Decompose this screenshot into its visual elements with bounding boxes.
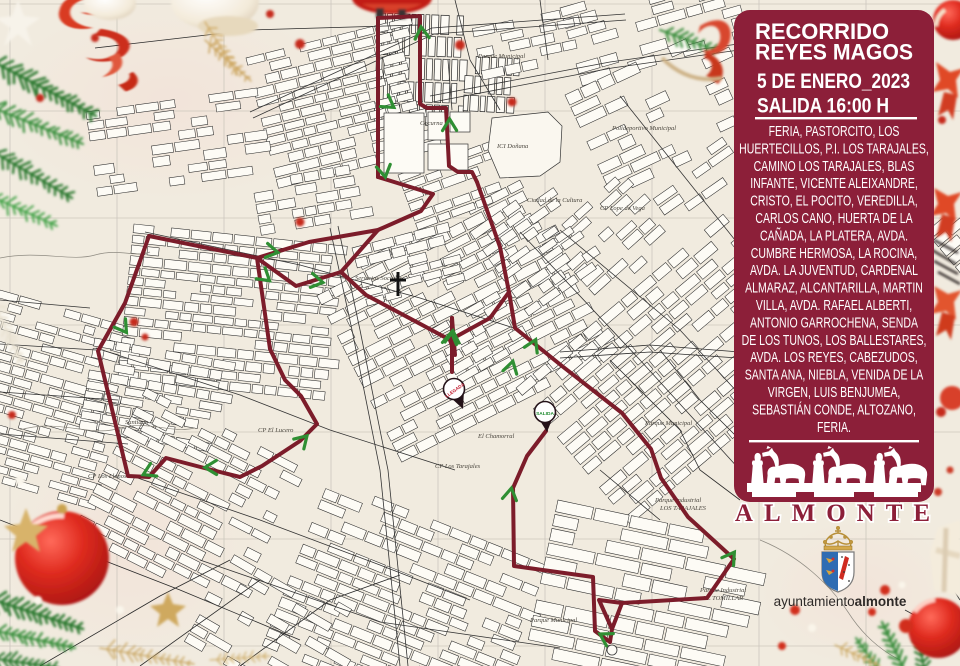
svg-text:VIRGEN, LUIS BENJUMEA,: VIRGEN, LUIS BENJUMEA, — [768, 383, 901, 400]
svg-text:ALMARAZ, ALCANTARILLA, MARTIN: ALMARAZ, ALCANTARILLA, MARTIN — [745, 279, 923, 296]
svg-text:5 DE ENERO_2023: 5 DE ENERO_2023 — [757, 70, 910, 93]
svg-text:AVDA. LOS REYES, CABEZUDOS,: AVDA. LOS REYES, CABEZUDOS, — [750, 348, 917, 365]
svg-text:Ciudad de la Cultura: Ciudad de la Cultura — [527, 197, 582, 204]
svg-text:ANTONIO GARROCHENA, SENDA: ANTONIO GARROCHENA, SENDA — [750, 314, 918, 331]
svg-text:INFANTE, VICENTE ALEIXANDRE,: INFANTE, VICENTE ALEIXANDRE, — [750, 174, 918, 191]
svg-text:CP El Lucero: CP El Lucero — [258, 427, 294, 434]
svg-text:VILLA, AVDA. RAFAEL ALBERTI,: VILLA, AVDA. RAFAEL ALBERTI, — [756, 296, 912, 313]
svg-text:CAÑADA, LA PLATERA, AVDA.: CAÑADA, LA PLATERA, AVDA. — [760, 227, 908, 244]
svg-text:SALIDA: SALIDA — [536, 411, 554, 417]
svg-text:CRISTO, EL POCITO, VEREDILLA,: CRISTO, EL POCITO, VEREDILLA, — [750, 192, 917, 209]
svg-text:Cocurna: Cocurna — [420, 120, 443, 127]
svg-text:Parque Municipal: Parque Municipal — [644, 420, 692, 427]
svg-text:Parque Municipal: Parque Municipal — [477, 53, 525, 60]
svg-text:CAMINO LOS TARAJALES, BLAS: CAMINO LOS TARAJALES, BLAS — [754, 157, 915, 174]
svg-text:CP Los Llanos: CP Los Llanos — [88, 473, 127, 480]
svg-text:El Chamorral: El Chamorral — [477, 433, 514, 440]
svg-text:ICI Doñana: ICI Doñana — [496, 143, 528, 150]
svg-text:DE LOS TUNOS, LOS BALLESTARES,: DE LOS TUNOS, LOS BALLESTARES, — [742, 331, 927, 348]
svg-text:Polideportivo Municipal: Polideportivo Municipal — [611, 125, 676, 132]
svg-text:CARLOS CANO, HUERTA DE LA: CARLOS CANO, HUERTA DE LA — [755, 209, 913, 226]
svg-text:SALIDA 16:00 H: SALIDA 16:00 H — [757, 95, 889, 118]
svg-text:Parque Industrial: Parque Industrial — [699, 587, 746, 594]
svg-text:Santiago: Santiago — [125, 419, 149, 426]
svg-text:FERIA, PASTORCITO, LOS: FERIA, PASTORCITO, LOS — [769, 122, 900, 139]
svg-text:REYES MAGOS: REYES MAGOS — [755, 40, 913, 65]
svg-text:CUMBRE HERMOSA, LA ROCINA,: CUMBRE HERMOSA, LA ROCINA, — [751, 244, 917, 261]
svg-text:Parque Municipal: Parque Municipal — [529, 617, 577, 624]
svg-text:SANTA ANA, NIEBLA, VENIDA DE L: SANTA ANA, NIEBLA, VENIDA DE LA — [745, 366, 924, 383]
svg-text:SEBASTIÁN CONDE, ALTOZANO,: SEBASTIÁN CONDE, ALTOZANO, — [752, 401, 916, 418]
svg-text:ayuntamientoalmonte: ayuntamientoalmonte — [774, 594, 907, 609]
svg-text:AVDA. LA JUVENTUD, CARDENAL: AVDA. LA JUVENTUD, CARDENAL — [750, 261, 918, 278]
svg-text:HUERTECILLOS, P.I. LOS TARAJAL: HUERTECILLOS, P.I. LOS TARAJALES, — [739, 140, 929, 157]
svg-text:CP Lope de Vega: CP Lope de Vega — [600, 205, 645, 212]
svg-text:FERIA.: FERIA. — [817, 418, 851, 435]
svg-text:ALMONTE: ALMONTE — [735, 500, 941, 527]
svg-text:CP Los Tarajales: CP Los Tarajales — [435, 463, 481, 470]
